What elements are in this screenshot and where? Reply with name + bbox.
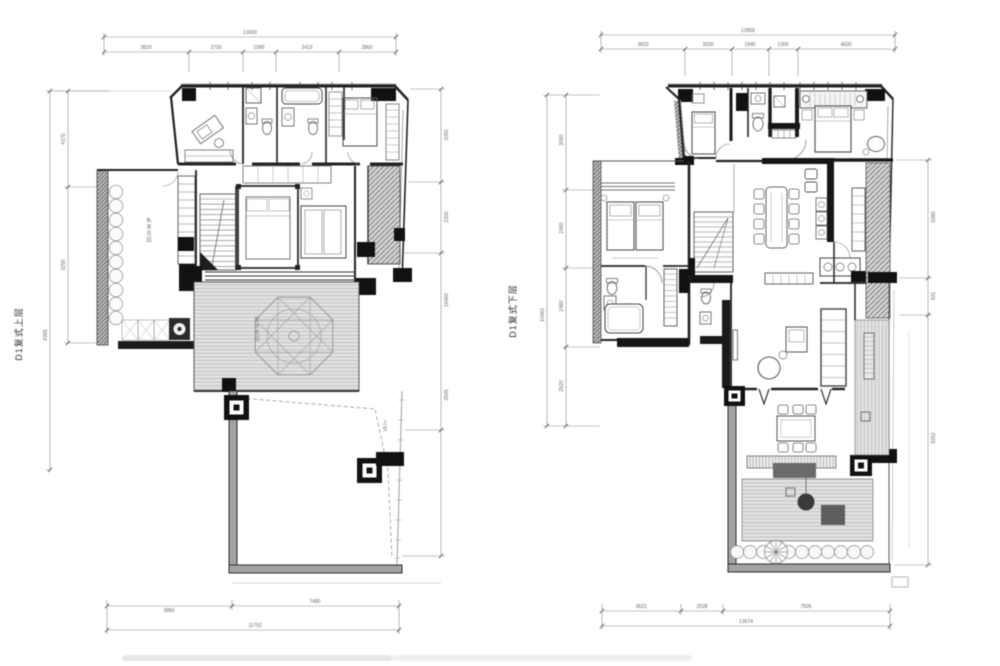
svg-text:2520: 2520: [559, 380, 565, 391]
svg-text:2415: 2415: [301, 45, 312, 51]
svg-text:3623: 3623: [635, 604, 646, 610]
svg-text:3050: 3050: [559, 134, 565, 145]
svg-text:4175: 4175: [61, 133, 67, 144]
svg-text:3860: 3860: [163, 608, 174, 614]
svg-text:1300: 1300: [777, 42, 788, 48]
svg-text:2028: 2028: [696, 604, 707, 610]
svg-text:3255: 3255: [61, 259, 67, 270]
svg-text:3050: 3050: [444, 129, 450, 140]
svg-text:2480: 2480: [559, 222, 565, 233]
svg-text:3545: 3545: [444, 389, 450, 400]
svg-text:8365: 8365: [43, 329, 49, 340]
svg-text:2730: 2730: [210, 45, 221, 51]
svg-text:13674: 13674: [739, 619, 753, 625]
svg-text:花: 花: [254, 329, 259, 336]
svg-text:上: 上: [382, 419, 387, 426]
svg-text:空: 空: [254, 316, 259, 323]
svg-text:园: 园: [146, 238, 151, 244]
svg-text:16460: 16460: [444, 293, 450, 307]
svg-text:7505: 7505: [800, 604, 811, 610]
svg-text:D1复式下层: D1复式下层: [507, 284, 518, 338]
svg-text:7480: 7480: [309, 599, 320, 605]
svg-text:3603: 3603: [637, 42, 648, 48]
svg-text:931: 931: [931, 292, 937, 301]
svg-text:2300: 2300: [444, 211, 450, 222]
svg-text:家: 家: [146, 224, 151, 231]
svg-text:D1复式上层: D1复式上层: [13, 307, 24, 361]
svg-text:13600: 13600: [243, 30, 257, 36]
svg-text:中: 中: [254, 323, 259, 330]
svg-text:2860: 2860: [361, 45, 372, 51]
svg-text:10463: 10463: [540, 308, 546, 322]
svg-text:4600: 4600: [840, 42, 851, 48]
svg-text:私: 私: [146, 217, 151, 224]
svg-text:9252: 9252: [931, 432, 937, 443]
svg-text:1585: 1585: [253, 45, 264, 51]
svg-text:2480: 2480: [559, 300, 565, 311]
svg-text:3810: 3810: [140, 45, 151, 51]
svg-text:5080: 5080: [931, 211, 937, 222]
svg-text:3030: 3030: [702, 42, 713, 48]
svg-text:11752: 11752: [248, 623, 262, 629]
svg-text:1940: 1940: [744, 42, 755, 48]
svg-text:园: 园: [254, 337, 259, 343]
svg-text:13868: 13868: [741, 28, 755, 34]
svg-text:空: 空: [382, 426, 387, 433]
svg-text:花: 花: [146, 230, 151, 237]
